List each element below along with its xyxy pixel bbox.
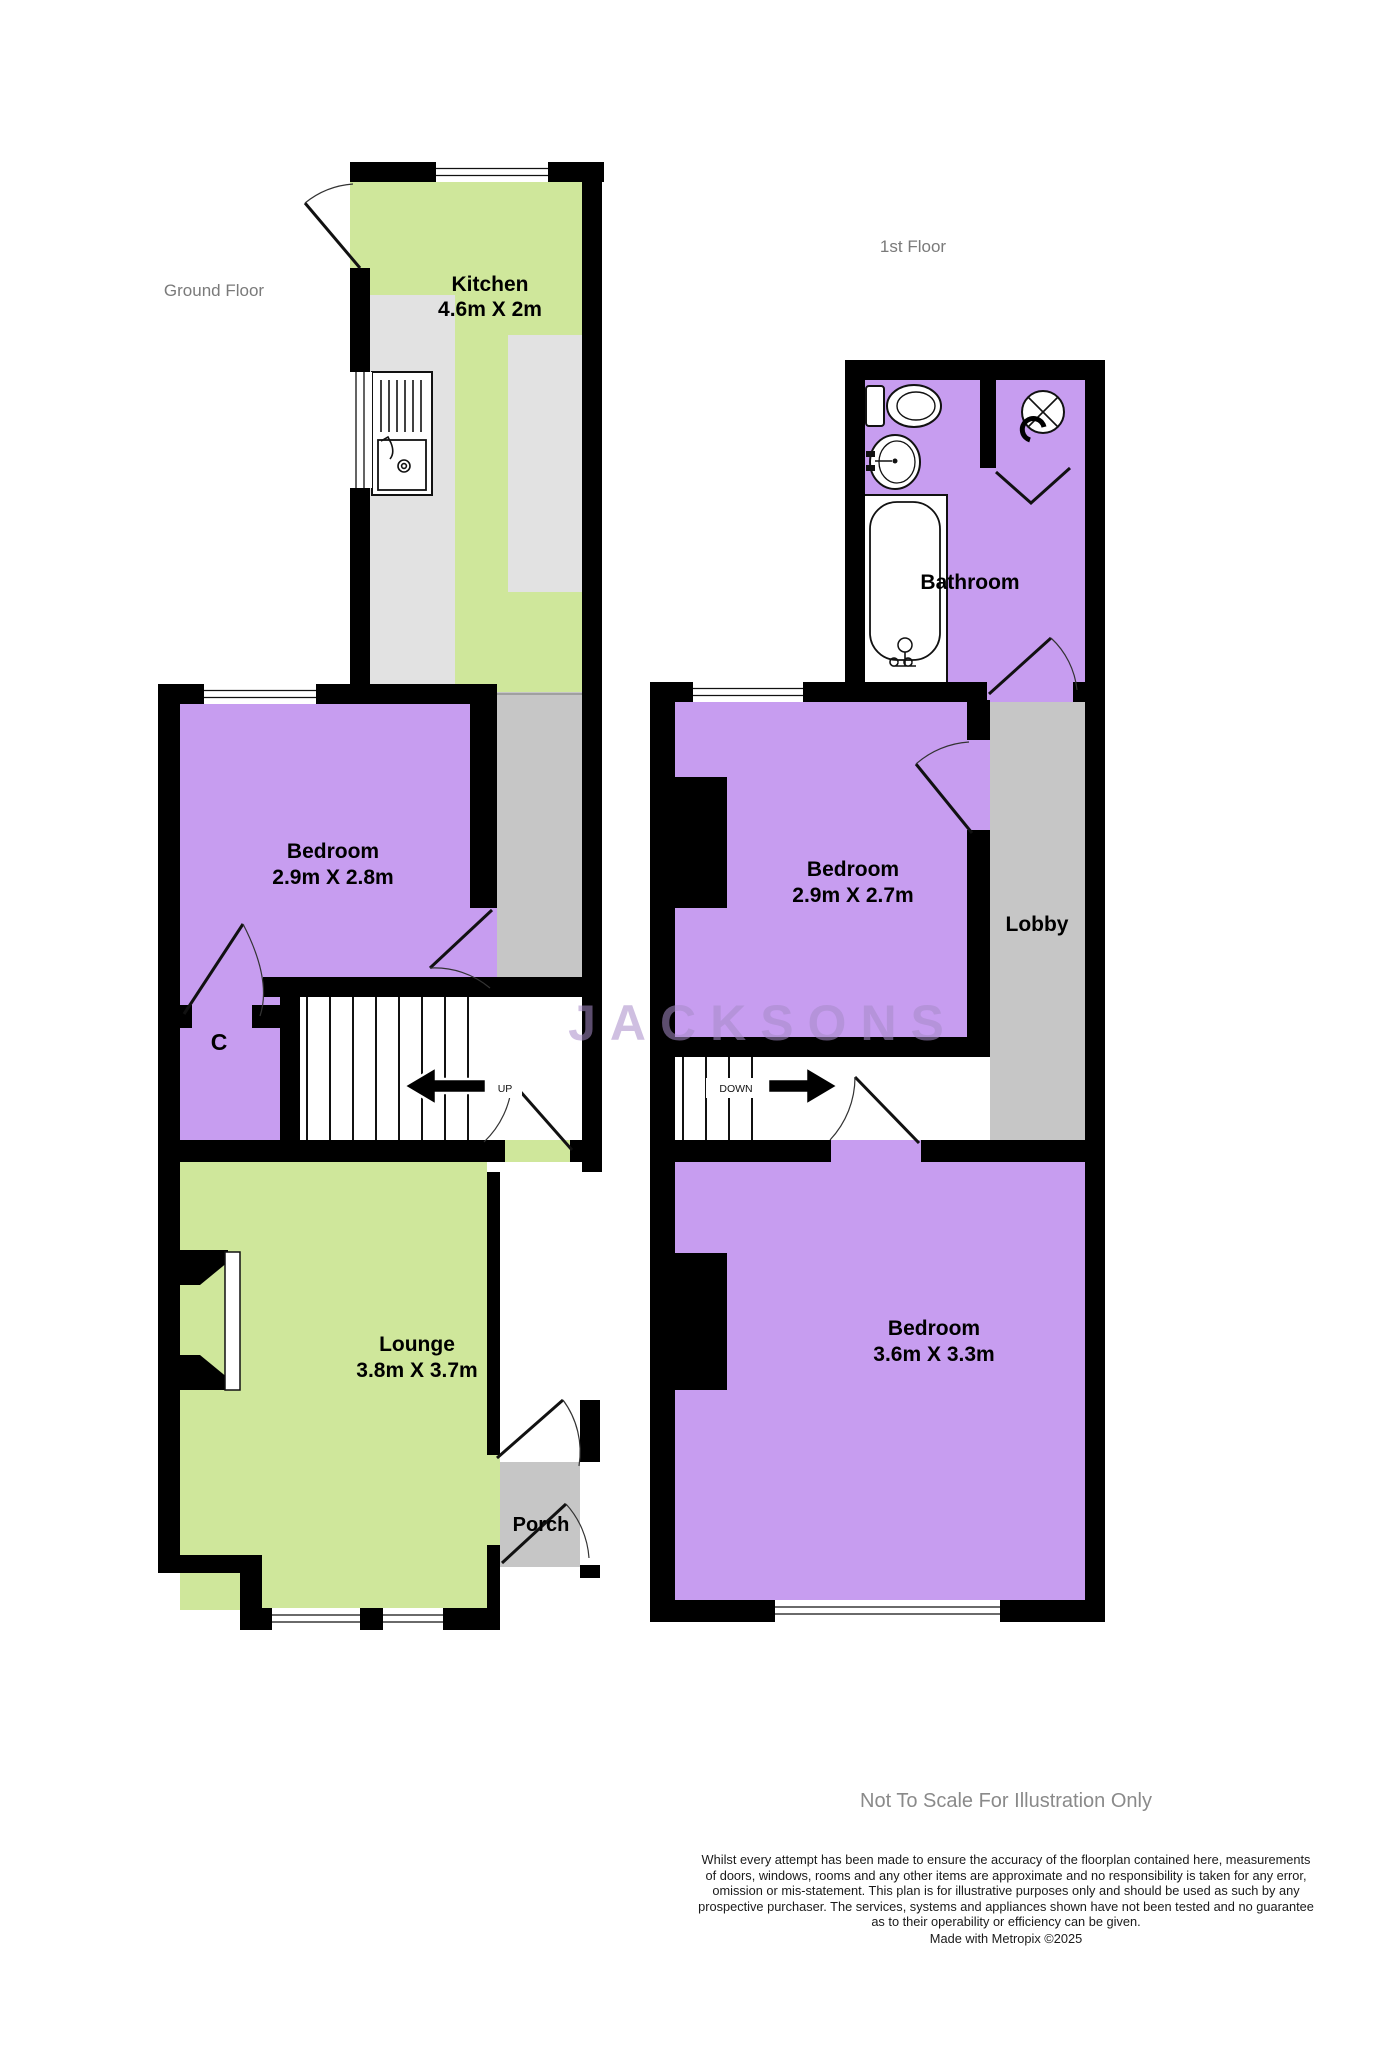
closet-label: C [211,1029,228,1055]
bay-window-left-icon [272,1608,360,1630]
kitchen-top-window-icon [436,162,548,182]
toilet-icon [866,385,941,427]
hallway-floor [497,692,582,997]
ff-bedroom-back-label: Bedroom [888,1317,980,1340]
kitchen-label: Kitchen [451,273,528,296]
bay-window-right-icon [383,1608,443,1630]
ff-bedroom-front-label: Bedroom [807,858,899,881]
ff-bedroom-back-chimney [675,1253,727,1390]
ff-bedroom-front-window-icon [693,682,803,702]
ff-bedroom-back-floor [675,1162,1085,1600]
porch-door-opening-floor [487,1455,500,1545]
stairs-down-label: DOWN [719,1083,752,1095]
metropix-credit: Made with Metropix ©2025 [610,1931,1392,1946]
lounge-label: Lounge [379,1333,455,1356]
bathroom-label: Bathroom [920,571,1019,594]
ff-stairwell-floor [675,1057,967,1140]
gf-stairwell-floor [300,997,582,1140]
stairs-up-label: UP [498,1083,513,1095]
kitchen-sink-icon [372,372,432,495]
ff-bedroom-front-chimney [675,777,727,908]
lobby-label: Lobby [1006,913,1069,936]
agency-watermark: JACKSONS [568,995,958,1051]
floorplan-drawing: UP Ground Floor Kitchen 4.6m X 2m Bedroo… [0,0,1392,2048]
ff-bedroom-front-dims: 2.9m X 2.7m [792,884,913,907]
ff-bedroom-back-door-opening-floor [831,1140,921,1162]
kitchen-side-window-icon [348,372,372,488]
gf-bedroom-dims: 2.9m X 2.8m [272,866,393,889]
lounge-door-opening-floor [505,1140,570,1162]
kitchen-door-opening-floor [350,182,370,268]
floorplan-page: UP Ground Floor Kitchen 4.6m X 2m Bedroo… [0,0,1392,2048]
kitchen-dims: 4.6m X 2m [438,298,542,321]
first-floor-title: 1st Floor [880,237,946,256]
lounge-dims: 3.8m X 3.7m [356,1359,477,1382]
ground-floor-plan: UP Ground Floor Kitchen 4.6m X 2m Bedroo… [158,162,604,1630]
porch-lounge-door-icon [497,1400,580,1466]
disclaimer-text: Whilst every attempt has been made to en… [610,1852,1392,1930]
fireplace-icon [225,1252,240,1390]
first-floor-plan: DOWN 1st Floor Bathroom Bedroom 2.9m X 2… [650,237,1105,1622]
kitchen-counter-right [508,335,582,592]
ground-floor-title: Ground Floor [164,281,264,300]
gf-bedroom-window-icon [204,684,316,704]
ff-bedroom-back-window-icon [775,1600,1000,1622]
closet-floor [180,977,280,1140]
porch-label: Porch [513,1514,570,1536]
gf-bedroom-label: Bedroom [287,840,379,863]
ff-bedroom-back-dims: 3.6m X 3.3m [873,1343,994,1366]
not-to-scale-notice: Not To Scale For Illustration Only [620,1790,1392,1813]
